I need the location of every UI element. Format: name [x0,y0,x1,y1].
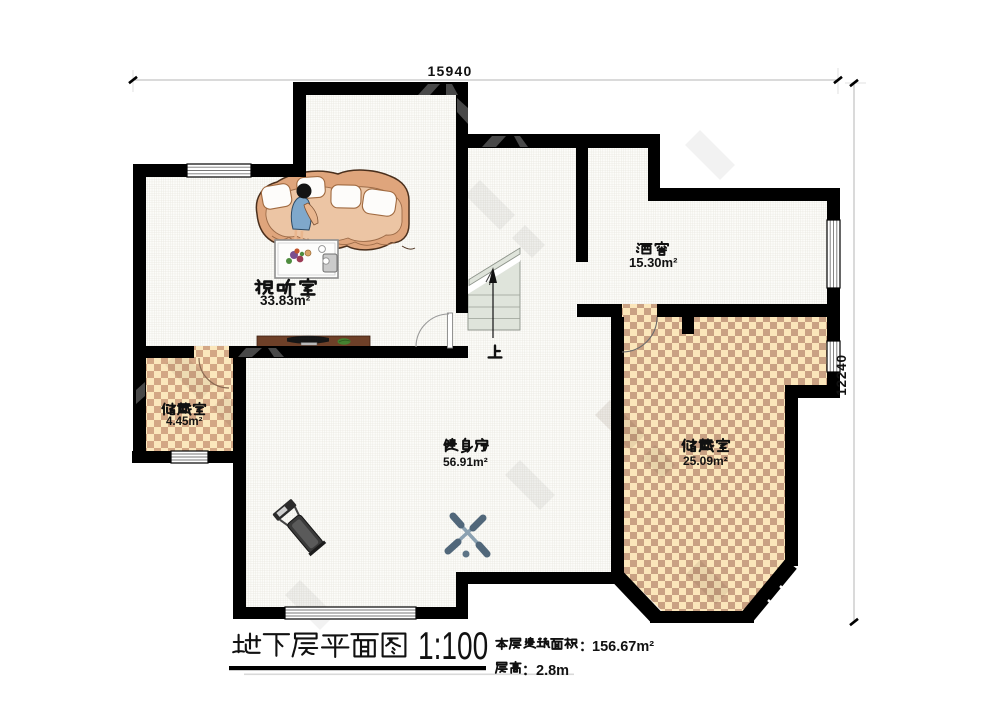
svg-text:15.30m²: 15.30m² [629,255,678,270]
svg-text:12240: 12240 [834,354,849,396]
svg-text:25.09m²: 25.09m² [683,454,728,468]
svg-text:15940: 15940 [428,63,473,79]
svg-text:1:100: 1:100 [418,625,488,669]
svg-text:33.83m²: 33.83m² [260,293,311,308]
svg-text:：: ： [579,638,593,654]
svg-text:156.67m²: 156.67m² [592,639,654,655]
svg-text:56.91m²: 56.91m² [443,455,488,469]
svg-text:2.8m: 2.8m [536,663,569,679]
svg-text:：: ： [522,662,536,678]
svg-text:4.45m²: 4.45m² [166,416,203,428]
